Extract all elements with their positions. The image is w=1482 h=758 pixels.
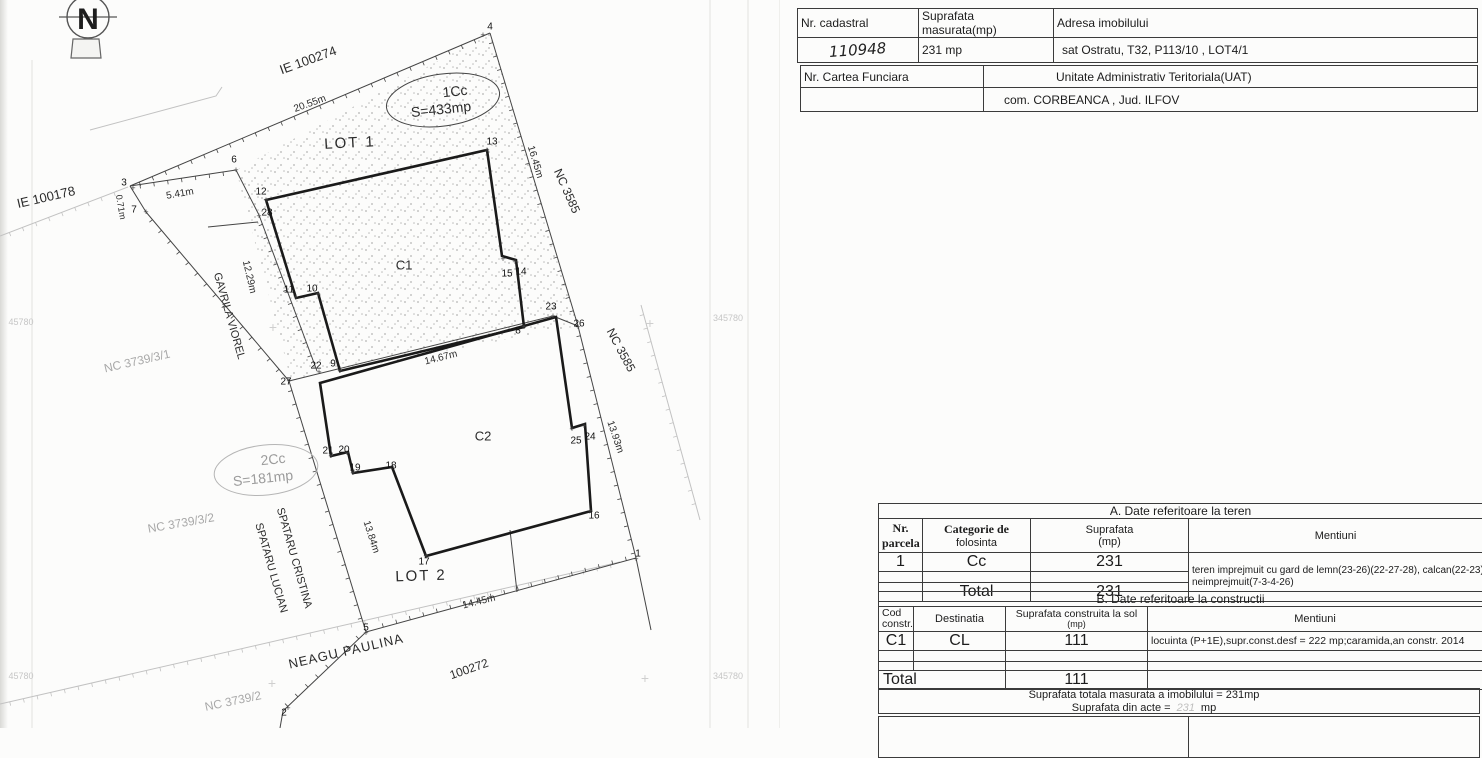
survey-tick — [269, 642, 270, 646]
survey-tick — [249, 337, 252, 340]
survey-tick — [651, 355, 655, 356]
survey-tick — [23, 699, 24, 703]
road-fence — [0, 562, 620, 704]
survey-tick — [384, 78, 386, 82]
boundary-3-7 — [130, 186, 146, 212]
survey-tick — [677, 450, 681, 451]
survey-tick — [267, 359, 270, 362]
col-header-suprafata: Suprafata (mp) — [1031, 519, 1189, 553]
survey-tick — [92, 683, 93, 687]
survey-tick — [621, 512, 625, 513]
survey-tick — [528, 583, 529, 587]
survey-tick — [610, 472, 614, 473]
teren-table: A. Date referitoare la teren Nr. parcela… — [878, 503, 1482, 602]
signature-row-divider — [1188, 717, 1189, 757]
boundary-extension — [636, 558, 651, 630]
survey-tick — [607, 458, 611, 459]
survey-tick — [258, 348, 261, 351]
col-header-mentiuni: Mentiuni — [1189, 519, 1482, 553]
survey-tick — [9, 232, 10, 236]
survey-tick — [191, 160, 193, 164]
signature-row — [878, 716, 1480, 758]
header-suprafata-masurata: Suprafata masurata(mp) — [919, 9, 1054, 38]
neighbor-fence — [641, 305, 700, 520]
plan-svg: N — [0, 0, 760, 728]
col-header-destinatia: Destinatia — [914, 607, 1006, 632]
handwritten-cadastral-number: 110948 — [829, 39, 887, 61]
survey-tick — [614, 485, 618, 486]
teren-empty-cell — [879, 572, 923, 583]
survey-tick — [490, 594, 491, 598]
survey-tick — [296, 636, 297, 640]
col-header-mentiuni-b: Mentiuni — [1148, 607, 1482, 632]
constructii-row-mentiuni: locuinta (P+1E),supr.const.desf = 222 mp… — [1148, 632, 1482, 651]
survey-tick — [296, 417, 300, 418]
survey-tick — [294, 116, 296, 120]
survey-tick — [684, 477, 688, 478]
survey-tick — [174, 664, 175, 668]
survey-tick — [585, 568, 586, 572]
survey-tick — [231, 316, 234, 319]
survey-tick — [604, 444, 608, 445]
teren-row-suprafata: 231 — [1031, 553, 1189, 572]
survey-tick — [167, 241, 170, 244]
neighbor-fence — [0, 187, 128, 236]
survey-tick — [255, 133, 257, 137]
survey-tick — [436, 56, 438, 60]
survey-tick — [64, 689, 65, 693]
survey-tick — [358, 89, 360, 93]
survey-tick — [577, 336, 581, 337]
survey-tick — [463, 601, 464, 605]
constructii-empty-cell — [914, 651, 1006, 662]
survey-tick — [240, 327, 243, 330]
survey-tick — [307, 111, 309, 115]
survey-tick — [187, 661, 188, 665]
survey-tick — [419, 608, 420, 612]
survey-tick — [358, 618, 362, 619]
survey-tick — [101, 197, 102, 201]
survey-tick — [242, 649, 243, 653]
survey-tick — [688, 490, 692, 491]
survey-tick — [583, 363, 587, 364]
survey-tick — [152, 177, 154, 181]
survey-tick — [504, 590, 505, 594]
cartea-funciara-table: Nr. Cartea Funciara Unitate Administrati… — [800, 65, 1478, 112]
survey-tick — [673, 436, 677, 437]
survey-tick — [149, 220, 152, 223]
survey-tick — [501, 589, 502, 593]
survey-tick — [51, 692, 52, 696]
value-suprafata-masurata: 231 mp — [919, 38, 1054, 63]
survey-tick — [223, 172, 224, 176]
survey-tick — [305, 444, 309, 445]
survey-tick — [181, 178, 182, 182]
survey-tick — [371, 84, 373, 88]
survey-tick — [350, 591, 354, 592]
survey-tick — [317, 484, 321, 485]
survey-tick — [204, 284, 207, 287]
col-header-nr-parcela: Nr. parcela — [879, 519, 923, 553]
survey-tick — [10, 702, 11, 706]
constructii-empty-cell — [1148, 671, 1482, 690]
survey-tick — [392, 614, 393, 618]
constructii-empty-cell — [1006, 662, 1148, 671]
survey-tick — [658, 382, 662, 383]
survey-tick — [324, 630, 325, 634]
cadastral-header-table: Nr. cadastral Suprafata masurata(mp) Adr… — [797, 8, 1478, 63]
survey-tick — [242, 138, 244, 142]
survey-tick — [337, 551, 341, 552]
constructii-row-suprafata: 111 — [1006, 632, 1148, 651]
survey-tick — [288, 391, 292, 392]
constructii-empty-cell — [879, 662, 914, 671]
survey-tick — [49, 217, 50, 221]
cadastral-site-plan: N IE 10027420.55mLOT 1IE 1001785.41m0.71… — [0, 0, 760, 728]
survey-tick — [631, 553, 635, 554]
survey-tick — [88, 202, 89, 206]
col-header-suprafata-sol: Suprafata construita la sol (mp) — [1006, 607, 1148, 632]
survey-tick — [597, 417, 601, 418]
constructii-total-label: Total — [879, 671, 1006, 690]
survey-tick — [209, 174, 210, 178]
survey-tick — [617, 499, 621, 500]
survey-tick — [281, 122, 283, 126]
survey-tick — [165, 171, 167, 175]
header-nr-cadastral: Nr. cadastral — [798, 9, 919, 38]
survey-tick — [146, 671, 147, 675]
survey-tick — [22, 227, 23, 231]
survey-tick — [268, 127, 270, 131]
survey-tick — [178, 166, 180, 170]
constructii-empty-cell — [879, 651, 914, 662]
survey-tick — [168, 180, 169, 184]
survey-tick — [213, 294, 216, 297]
survey-tick — [351, 624, 352, 628]
neighbor-fence-zigzag — [90, 87, 222, 130]
survey-tick — [292, 404, 296, 405]
survey-tick — [587, 376, 591, 377]
survey-tick — [410, 67, 412, 71]
survey-tick — [647, 342, 651, 343]
value-cartea-funciara — [801, 88, 984, 112]
survey-tick — [662, 396, 666, 397]
survey-tick — [285, 704, 288, 707]
teren-empty-cell — [923, 572, 1031, 583]
survey-tick — [321, 498, 325, 499]
header-adresa: Adresa imobilului — [1054, 9, 1478, 38]
survey-tick — [436, 609, 437, 613]
constructii-empty-cell — [1006, 651, 1148, 662]
survey-tick — [300, 431, 304, 432]
survey-tick — [474, 595, 475, 599]
survey-tick — [315, 675, 318, 678]
teren-row-nr: 1 — [879, 553, 923, 572]
survey-tick — [448, 51, 450, 55]
scanned-cadastral-document: { "header_tables": { "t1": { "headers": … — [0, 0, 1482, 728]
survey-tick — [309, 457, 313, 458]
survey-tick — [201, 658, 202, 662]
survey-tick — [590, 390, 594, 391]
survey-tick — [446, 602, 447, 606]
parcel-1cc-stipple — [236, 33, 578, 380]
summary-line2: Suprafata din acte =231mp — [879, 702, 1479, 715]
north-letter: N — [77, 3, 99, 36]
survey-tick — [229, 144, 231, 148]
survey-tick — [594, 404, 598, 405]
survey-tick — [217, 149, 219, 153]
value-nr-cadastral: 110948 — [798, 38, 919, 63]
survey-tick — [305, 684, 308, 687]
survey-tick — [276, 369, 279, 372]
survey-tick — [37, 696, 38, 700]
constructii-title: B. Date referitoare la constructii — [879, 592, 1482, 607]
survey-tick — [531, 583, 532, 587]
survey-tick — [114, 192, 115, 196]
survey-tick — [600, 431, 604, 432]
boundary-5-2 — [283, 632, 366, 711]
survey-tick — [222, 305, 225, 308]
survey-tick — [310, 633, 311, 637]
survey-tick — [580, 349, 584, 350]
survey-tick — [336, 655, 339, 658]
survey-tick — [477, 597, 478, 601]
survey-tick — [62, 212, 63, 216]
teren-row-categorie: Cc — [923, 553, 1031, 572]
survey-tick — [409, 616, 410, 620]
survey-tick — [346, 578, 350, 579]
constructii-total-value: 111 — [1006, 671, 1148, 690]
survey-tick — [326, 665, 329, 668]
survey-tick — [332, 100, 334, 104]
survey-tick — [160, 667, 161, 671]
col-header-categorie: Categorie de folosinta — [923, 519, 1031, 553]
survey-tick — [78, 686, 79, 690]
survey-tick — [177, 252, 180, 255]
survey-tick — [655, 369, 659, 370]
header-cartea-funciara: Nr. Cartea Funciara — [801, 66, 984, 88]
constructii-table: B. Date referitoare la constructii Cod c… — [878, 591, 1482, 690]
summary-line1: Suprafata totala masurata a imobilului =… — [879, 689, 1479, 702]
survey-tick — [204, 155, 206, 159]
survey-tick — [423, 62, 425, 66]
survey-tick — [365, 621, 366, 625]
constructii-row-destinatia: CL — [914, 632, 1006, 651]
survey-tick — [295, 694, 298, 697]
survey-tick — [666, 409, 670, 410]
survey-tick — [283, 639, 284, 643]
survey-tick — [597, 567, 598, 571]
survey-tick — [186, 262, 189, 265]
scan-fold-line — [779, 0, 780, 728]
survey-tick — [228, 652, 229, 656]
survey-tick — [255, 646, 256, 650]
value-adresa: sat Ostratu, T32, P113/10 , LOT4/1 — [1054, 38, 1478, 63]
survey-tick — [406, 611, 407, 615]
survey-tick — [450, 605, 451, 609]
survey-tick — [378, 617, 379, 621]
survey-tick — [669, 423, 673, 424]
survey-tick — [195, 176, 196, 180]
handwritten-acte-value: 231 — [1177, 702, 1195, 715]
survey-tick — [320, 105, 322, 109]
survey-tick — [460, 599, 461, 603]
survey-tick — [195, 273, 198, 276]
survey-tick — [356, 636, 359, 639]
constructii-empty-cell — [1148, 651, 1482, 662]
survey-tick — [333, 538, 337, 539]
north-arrow-icon: N — [59, 0, 117, 58]
survey-tick — [627, 539, 631, 540]
survey-tick — [397, 73, 399, 77]
survey-tick — [517, 586, 518, 590]
survey-tick — [396, 620, 397, 624]
survey-tick — [643, 328, 647, 329]
survey-tick — [624, 526, 628, 527]
survey-tick — [337, 627, 338, 631]
survey-tick — [105, 680, 106, 684]
survey-tick — [133, 674, 134, 678]
teren-title: A. Date referitoare la teren — [879, 504, 1482, 519]
survey-tick — [354, 605, 358, 606]
survey-tick — [35, 222, 36, 226]
survey-tick — [692, 504, 696, 505]
constructii-empty-cell — [914, 662, 1006, 671]
value-uat: com. CORBEANCA , Jud. ILFOV — [984, 88, 1478, 112]
survey-tick — [325, 511, 329, 512]
survey-tick — [214, 655, 215, 659]
survey-tick — [625, 557, 626, 561]
survey-tick — [341, 565, 345, 566]
survey-tick — [423, 612, 424, 616]
boundary-3-6 — [130, 170, 236, 186]
survey-tick — [346, 646, 349, 649]
survey-tick — [158, 230, 161, 233]
survey-tick — [433, 605, 434, 609]
header-uat: Unitate Administrativ Teritoriala(UAT) — [984, 66, 1478, 88]
constructii-empty-cell — [1148, 662, 1482, 671]
survey-tick — [571, 572, 572, 576]
col-header-cod-constr: Cod constr. — [879, 607, 914, 632]
survey-tick — [154, 182, 155, 186]
boundary-27-5 — [289, 381, 366, 632]
survey-tick — [329, 524, 333, 525]
survey-tick — [382, 623, 383, 627]
summary-box: Suprafata totala masurata a imobilului =… — [878, 688, 1480, 714]
teren-empty-cell — [1031, 572, 1189, 583]
connector-line — [510, 530, 517, 592]
survey-tick — [681, 463, 685, 464]
survey-tick — [640, 315, 644, 316]
survey-tick — [119, 677, 120, 681]
constructii-row-cod: C1 — [879, 632, 914, 651]
boundary-extension — [280, 711, 283, 728]
survey-tick — [598, 564, 599, 568]
survey-tick — [487, 592, 488, 596]
boundary-1-5 — [366, 558, 636, 632]
parcel-2cc-ellipse — [212, 440, 321, 501]
survey-tick — [515, 586, 516, 590]
survey-tick — [75, 207, 76, 211]
survey-tick — [345, 94, 347, 98]
